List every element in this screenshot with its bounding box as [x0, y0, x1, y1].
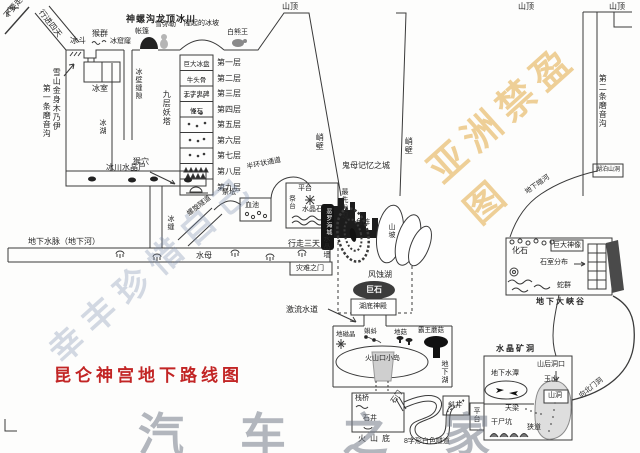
ice-hole-label: 冰窟窿 [110, 38, 131, 46]
snakes-icon [508, 280, 550, 292]
lake-cave-label: 湖泊山洞 [596, 167, 620, 174]
altar-stand-label: 祭台 [287, 195, 294, 210]
tadpoles-label: 蝌蚪 [364, 328, 377, 335]
ice-crack-label: 冰缝 [166, 215, 174, 231]
fossil-icon [510, 239, 554, 276]
plank-bridge-label: 栈桥 [355, 395, 369, 403]
cave-to-river [150, 186, 162, 248]
gully1-label: 第一条磨音沟 [42, 84, 51, 154]
map-canvas: 不要走 行进四天 神螺沟龙顶冰川 冰斗 猴群 冰窟窿 帐篷 雪弥勒 隆起的冰坡 … [0, 0, 640, 453]
stone-rooms-arrow-icon [574, 262, 585, 266]
ice-bulge-label: 隆起的冰坡 [184, 20, 219, 28]
corner-mark [5, 419, 17, 431]
bear-king-icon [232, 39, 244, 47]
fish-icon [496, 388, 518, 396]
walk-three-days-label: 行走三天 [288, 239, 320, 248]
cliff-left-label: 峭壁 [315, 133, 324, 151]
crater-isle-label: 火山口小岛 [365, 355, 400, 363]
gully2-label: 第二条磨音沟 [598, 74, 607, 154]
jade-mountain-label: 玉山 [544, 376, 558, 384]
tower-layer-6: 第六层 [217, 136, 241, 145]
blood-pool-label: 血池 [245, 202, 259, 210]
geo-crystal-label: 地磁晶 [336, 331, 356, 338]
tower-layer-1: 第一层 [217, 58, 241, 67]
tower-cell-3: 无字鬼碑 [180, 88, 213, 98]
king-mushroom-label: 霸王蘑菇 [418, 327, 444, 334]
tower-layer-2: 第二层 [217, 74, 241, 83]
dark-city-label: 恶罗海城 [324, 208, 331, 236]
torrent-label: 激流水道 [286, 305, 318, 314]
blood-curve [214, 201, 241, 210]
tower-layer-4: 第四层 [217, 105, 241, 114]
rear-entrance-label: 山后洞口 [537, 361, 565, 369]
wall-crack-channel [124, 50, 132, 140]
monkey-group-icon [92, 41, 106, 45]
ground-mushroom-icon [397, 336, 413, 345]
sky-beam-label: 天梁 [505, 405, 519, 413]
city-name-label: 鬼母记忆之城 [342, 161, 390, 170]
shrine-icon [186, 187, 208, 193]
ground-mushroom-label: 地菇 [394, 329, 407, 336]
mine-platform-label: 平台 [472, 407, 480, 423]
wall-crack-label: 冰壁缝隙 [134, 68, 142, 114]
platform-label: 平台 [298, 185, 312, 193]
tower-layer-7: 第七层 [217, 151, 241, 160]
spiral-band [178, 208, 222, 246]
small-altar-label: 祭坛 [222, 189, 236, 197]
s-tunnel-label: 8字形白色隧道 [404, 438, 450, 446]
monkey-cave-figures-icon [88, 177, 192, 183]
fish-array-label: 鱼阵 [356, 219, 370, 227]
claw-icon [70, 52, 81, 56]
water-pool-icon [485, 381, 527, 399]
mine-name-label: 水晶矿洞 [496, 344, 536, 353]
ice-room-label: 冰室 [92, 84, 108, 93]
stone-well-icon [364, 427, 372, 429]
giant-statue-label: 巨大神像 [553, 242, 581, 250]
narrow-path-label: 狭道 [527, 424, 541, 432]
tower-cell-4: 怪石 [180, 105, 213, 115]
tower-name-label: 九层妖塔 [162, 90, 171, 134]
cave-label: 山洞 [548, 392, 562, 400]
peak-label-3: 山顶 [609, 2, 625, 11]
snow-maitreya-label: 雪弥勒 [155, 21, 176, 29]
disaster-gate-label: 灾难之门 [296, 265, 324, 273]
plank-icon [356, 406, 368, 409]
tower-cell-2: 牛头骨 [180, 74, 213, 84]
cliff-right-label: 峭壁 [404, 137, 413, 155]
crystal-wall-label: 水晶墙 [322, 235, 330, 259]
dark-river-curve [510, 171, 597, 237]
peak-label-2: 山顶 [518, 2, 534, 11]
hillside-label: 山坡 [387, 223, 395, 239]
king-mushroom-icon [424, 336, 448, 358]
ice-lake-label: 冰湖 [98, 119, 106, 135]
incline-shaft-label: 斜井 [448, 402, 462, 410]
map-title: 昆仑神宫地下路线图 [54, 366, 243, 386]
wind-lake-label: 风蚀湖 [368, 270, 392, 279]
corpse-pit-label: 干尸坑 [491, 419, 512, 427]
first-found-label: 最先发现 [340, 188, 348, 228]
bear-king-label: 白熊王 [227, 29, 248, 37]
tower-figures-icon [184, 168, 208, 178]
star-icon [305, 195, 315, 205]
tent-icon [140, 37, 158, 49]
stone-rooms-grid [588, 244, 606, 289]
river-corridor [8, 248, 330, 262]
fossil-label: 化石 [512, 246, 528, 255]
jellyfish-label: 水母 [196, 251, 212, 260]
corpse-mounds-icon [490, 434, 528, 438]
stone-well-label: 石井 [363, 415, 377, 423]
snakes-label: 蛇群 [557, 282, 571, 290]
lake-temple-label: 湖底神殿 [359, 303, 387, 311]
crystal-stone-label: 水晶石 [302, 206, 323, 214]
canyon-shade [606, 240, 624, 293]
peak-label-1: 山顶 [282, 2, 298, 11]
tadpole-icon [365, 336, 382, 344]
tower-layer-5: 第五层 [217, 120, 241, 129]
s-tunnel [404, 396, 452, 440]
water-pool-label: 地下水潭 [491, 370, 519, 378]
funnel-right-wall [396, 13, 406, 196]
tower-layer-8: 第八层 [217, 167, 241, 176]
mummy-label: 雪山金身木乃伊 [52, 68, 61, 134]
cirque-label: 冰斗 [70, 36, 86, 45]
monkeys-label: 猴群 [92, 29, 108, 38]
underground-lake-label: 地下湖 [440, 360, 448, 384]
volcano-bottom-label: 火山底 [358, 434, 394, 443]
tent-label: 帐篷 [135, 28, 149, 36]
canyon-name-label: 地下大峡谷 [536, 297, 586, 306]
tower-layer-3: 第三层 [217, 89, 241, 98]
tower-cell-1: 巨大冰盘 [180, 58, 213, 68]
water-vein-label: 地下水脉（地下河） [28, 237, 100, 246]
stone-rooms-label: 石室分布 [540, 259, 568, 267]
crystal-corpse-label: 冰川水晶尸 [106, 163, 146, 172]
boulder-label: 巨石 [366, 285, 382, 294]
geo-crystal-icon [336, 339, 346, 349]
